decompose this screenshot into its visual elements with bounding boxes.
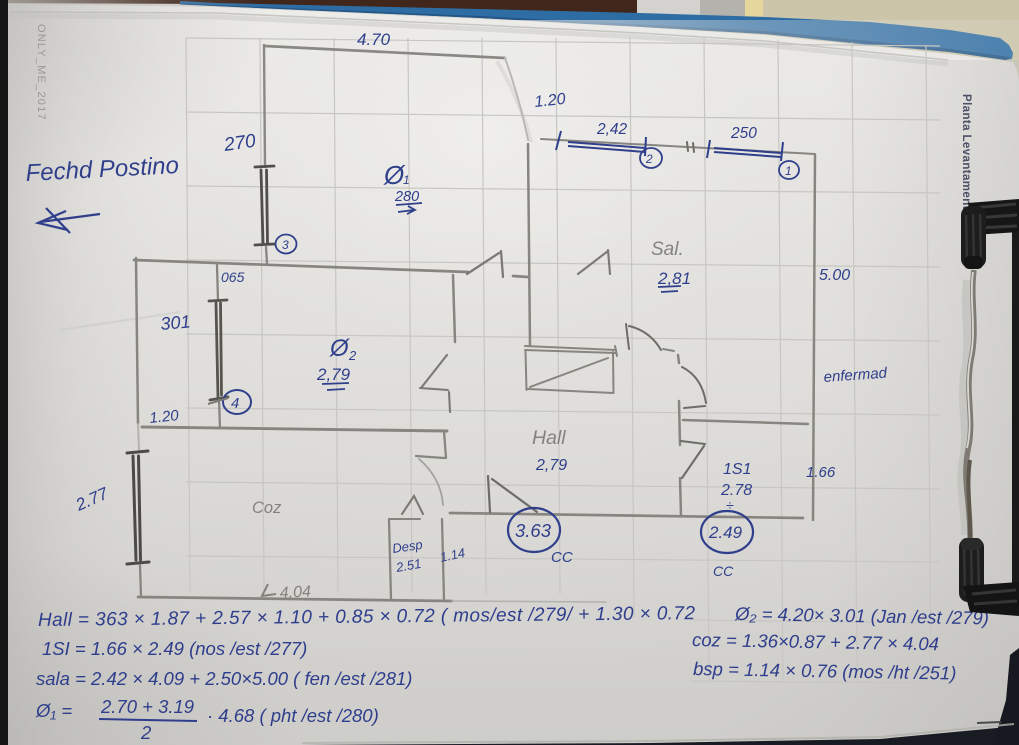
svg-text:4: 4 [231,395,239,412]
svg-text:CC: CC [551,549,573,566]
svg-text:1S1: 1S1 [723,461,751,478]
svg-text:ONLY_ME_2017: ONLY_ME_2017 [35,24,47,121]
svg-text:2: 2 [645,152,653,166]
svg-text:2.49: 2.49 [708,523,743,542]
svg-text:1: 1 [403,173,410,187]
svg-text:1: 1 [785,164,792,178]
svg-text:2,79: 2,79 [535,457,567,474]
svg-text:Coz: Coz [252,499,282,517]
svg-text:2,42: 2,42 [596,121,628,138]
svg-text:Planta Levantamento: Planta Levantamento [960,94,972,217]
svg-text:1SI = 1.66 × 2.49 (nos /est /2: 1SI = 1.66 × 2.49 (nos /est /277) [42,638,307,659]
svg-text:Ø₂ = 4.20× 3.01 (Jan /est /279: Ø₂ = 4.20× 3.01 (Jan /est /279) [734,603,989,628]
svg-text:5.00: 5.00 [819,267,850,284]
svg-text:3: 3 [282,238,289,252]
svg-text:4.04: 4.04 [279,583,311,602]
svg-text:÷: ÷ [726,497,734,513]
svg-text:2.78: 2.78 [720,482,752,499]
svg-text:2,81: 2,81 [657,269,691,288]
svg-text:Ø: Ø [329,335,350,362]
svg-text:2: 2 [140,722,152,743]
svg-text:Sal.: Sal. [651,239,684,260]
svg-text:Ø₁ =: Ø₁ = [35,700,72,721]
svg-text:sala = 2.42 × 4.09 + 2.50×5.00: sala = 2.42 × 4.09 + 2.50×5.00 ( fen /es… [36,668,412,689]
svg-text:4.70: 4.70 [357,30,391,49]
svg-text:2,79: 2,79 [316,365,351,384]
svg-text:1.20: 1.20 [149,407,180,427]
svg-text:CC: CC [713,563,734,579]
svg-text:250: 250 [730,125,757,142]
svg-text:· 4.68 ( pht /est /280): · 4.68 ( pht /est /280) [207,705,379,726]
svg-text:301: 301 [160,311,192,334]
svg-text:coz = 1.36×0.87 + 2.77 × 4.04: coz = 1.36×0.87 + 2.77 × 4.04 [692,629,939,654]
svg-text:1.20: 1.20 [534,91,567,111]
svg-text:280: 280 [394,189,419,205]
svg-text:2: 2 [348,348,357,363]
svg-text:065: 065 [221,269,245,285]
svg-text:1.66: 1.66 [806,464,836,481]
svg-text:2.70 + 3.19: 2.70 + 3.19 [100,696,194,717]
svg-text:3.63: 3.63 [515,520,552,541]
svg-text:Hall: Hall [532,427,566,449]
